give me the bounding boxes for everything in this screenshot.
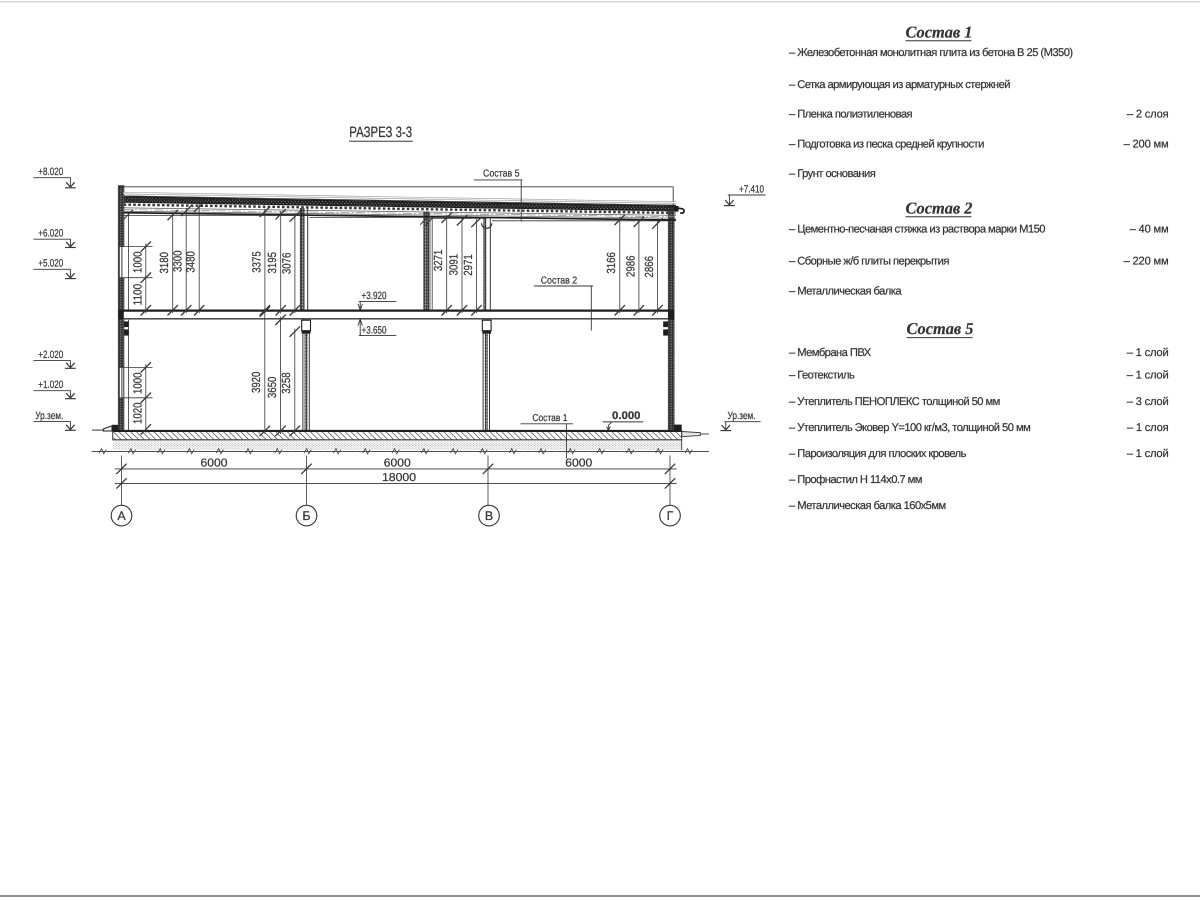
svg-text:1000: 1000 bbox=[130, 251, 144, 273]
svg-text:2986: 2986 bbox=[623, 255, 637, 277]
svg-text:– 1 слой: – 1 слой bbox=[1127, 370, 1169, 382]
svg-text:Состав 5: Состав 5 bbox=[483, 168, 520, 179]
svg-text:3180: 3180 bbox=[157, 252, 171, 274]
svg-text:– Железобетонная монолитная п: – Железобетонная монолитная плита из бет… bbox=[789, 47, 1073, 59]
svg-text:Состав 1: Состав 1 bbox=[906, 22, 973, 41]
svg-text:– Металлическая балка 160х5мм: – Металлическая балка 160х5мм bbox=[789, 500, 946, 512]
svg-text:– 200 мм: – 200 мм bbox=[1124, 139, 1169, 151]
svg-text:– Пленка полиэтиленовая: – Пленка полиэтиленовая bbox=[789, 109, 913, 121]
svg-text:– 40 мм: – 40 мм bbox=[1130, 224, 1169, 236]
svg-text:+1.020: +1.020 bbox=[38, 379, 63, 391]
svg-text:– 1 слой: – 1 слой bbox=[1127, 448, 1169, 460]
svg-text:– 1 слоя: – 1 слоя bbox=[1127, 422, 1169, 434]
svg-text:+7.410: +7.410 bbox=[739, 183, 764, 195]
svg-text:– Мембрана ПВХ: – Мембрана ПВХ bbox=[789, 347, 872, 359]
svg-text:Ур.зем.: Ур.зем. bbox=[728, 410, 756, 422]
svg-text:Состав 2: Состав 2 bbox=[906, 198, 973, 217]
svg-text:6000: 6000 bbox=[201, 458, 228, 470]
svg-text:Состав 2: Состав 2 bbox=[541, 275, 578, 286]
svg-text:– Подготовка из песка средней: – Подготовка из песка средней крупности bbox=[789, 139, 984, 151]
svg-text:+2.020: +2.020 bbox=[38, 349, 63, 361]
svg-text:Состав 1: Состав 1 bbox=[532, 413, 567, 424]
svg-text:3166: 3166 bbox=[604, 252, 618, 274]
svg-text:0.000: 0.000 bbox=[612, 410, 641, 422]
svg-text:1000: 1000 bbox=[130, 372, 144, 394]
svg-text:3920: 3920 bbox=[249, 371, 263, 393]
svg-text:– Цементно-песчаная стяжка из: – Цементно-песчаная стяжка из раствора м… bbox=[789, 224, 1045, 236]
svg-text:2971: 2971 bbox=[461, 254, 475, 276]
svg-text:18000: 18000 bbox=[382, 472, 416, 484]
svg-text:Ур.зем.: Ур.зем. bbox=[35, 410, 63, 422]
svg-text:– Утеплитель ПЕНОПЛЕКС толщино: – Утеплитель ПЕНОПЛЕКС толщиной 50 мм bbox=[789, 396, 1000, 408]
svg-text:Состав 5: Состав 5 bbox=[907, 319, 974, 338]
svg-text:– 1 слой: – 1 слой bbox=[1127, 347, 1169, 359]
svg-text:3480: 3480 bbox=[183, 251, 197, 273]
svg-text:3300: 3300 bbox=[170, 250, 184, 272]
svg-text:– Утеплитель Эковер Y=100 кг/м: – Утеплитель Эковер Y=100 кг/м3, толщино… bbox=[789, 422, 1030, 434]
svg-text:– 220 мм: – 220 мм bbox=[1124, 255, 1169, 267]
svg-text:– Пароизоляция для плоских кро: – Пароизоляция для плоских кровель bbox=[789, 448, 967, 460]
svg-text:3076: 3076 bbox=[279, 252, 293, 274]
svg-text:– Сборные ж/б плиты перекрытия: – Сборные ж/б плиты перекрытия bbox=[789, 255, 949, 267]
svg-text:Г: Г bbox=[667, 509, 674, 523]
svg-text:– 2 слоя: – 2 слоя bbox=[1127, 109, 1169, 121]
svg-text:+6.020: +6.020 bbox=[38, 228, 63, 240]
svg-text:РАЗРЕЗ 3-3: РАЗРЕЗ 3-3 bbox=[349, 124, 412, 141]
svg-text:3375: 3375 bbox=[249, 251, 263, 273]
svg-text:1020: 1020 bbox=[130, 402, 144, 424]
svg-text:3258: 3258 bbox=[279, 372, 293, 394]
svg-text:Б: Б bbox=[302, 509, 310, 523]
svg-text:– 3 слой: – 3 слой bbox=[1127, 396, 1169, 408]
svg-text:– Металлическая балка: – Металлическая балка bbox=[789, 286, 902, 298]
svg-text:В: В bbox=[485, 509, 493, 523]
svg-text:+3.650: +3.650 bbox=[362, 324, 387, 336]
svg-text:+5.020: +5.020 bbox=[38, 258, 63, 270]
svg-text:2866: 2866 bbox=[642, 256, 656, 278]
svg-text:3271: 3271 bbox=[431, 250, 445, 272]
svg-text:3091: 3091 bbox=[447, 254, 461, 276]
svg-text:– Профнастил Н 114х0.7 мм: – Профнастил Н 114х0.7 мм bbox=[789, 474, 922, 486]
svg-text:1100: 1100 bbox=[130, 283, 144, 305]
svg-text:А: А bbox=[117, 509, 126, 523]
svg-text:– Геотекстиль: – Геотекстиль bbox=[789, 370, 855, 382]
svg-text:3195: 3195 bbox=[265, 252, 279, 274]
svg-text:– Сетка армирующая из арматурн: – Сетка армирующая из арматурных стержне… bbox=[789, 79, 1010, 91]
svg-text:+8.020: +8.020 bbox=[38, 166, 63, 178]
svg-text:– Грунт основания: – Грунт основания bbox=[789, 168, 876, 180]
svg-text:6000: 6000 bbox=[565, 458, 592, 470]
svg-text:3650: 3650 bbox=[265, 376, 279, 398]
svg-text:6000: 6000 bbox=[384, 458, 411, 470]
svg-text:+3.920: +3.920 bbox=[362, 290, 387, 302]
